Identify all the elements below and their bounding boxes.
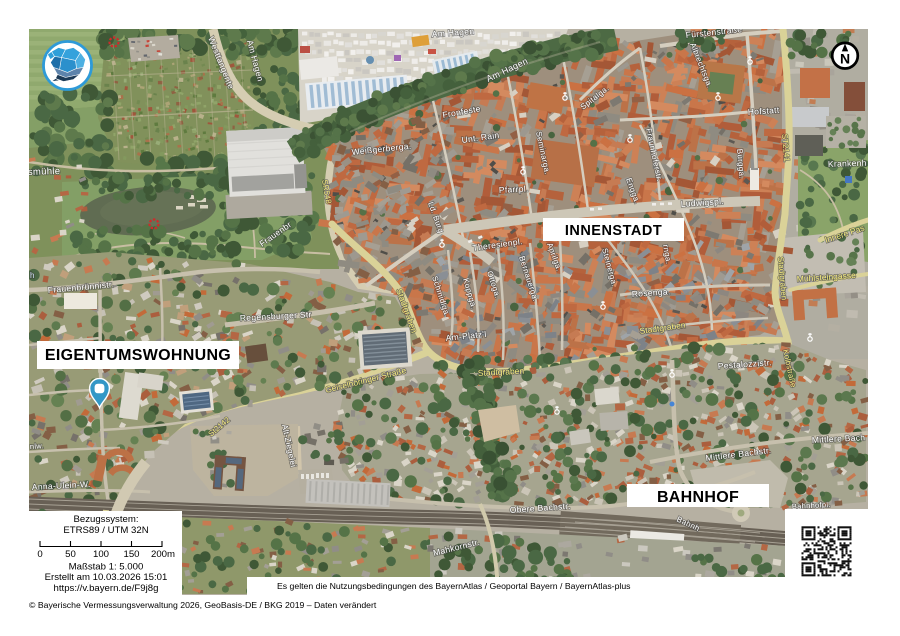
svg-text:Maßstab 1: 5.000: Maßstab 1: 5.000: [69, 562, 144, 573]
svg-text:200m: 200m: [151, 549, 175, 560]
svg-text:0: 0: [37, 549, 42, 560]
svg-text:100: 100: [93, 549, 109, 560]
svg-text:Krankenh: Krankenh: [828, 158, 867, 169]
svg-text:Bezugssystem:: Bezugssystem:: [73, 514, 138, 525]
svg-text:h: h: [30, 271, 35, 280]
svg-text:https://v.bayern.de/F9j8g: https://v.bayern.de/F9j8g: [54, 583, 159, 594]
svg-text:ETRS89 / UTM 32N: ETRS89 / UTM 32N: [63, 525, 148, 536]
svg-text:nlw.: nlw.: [30, 441, 45, 451]
svg-text:N: N: [840, 50, 850, 66]
svg-text:Erstellt am 10.03.2026 15:01: Erstellt am 10.03.2026 15:01: [45, 572, 168, 583]
svg-text:50: 50: [65, 549, 76, 560]
svg-text:smühle: smühle: [29, 166, 61, 178]
svg-text:Pfarrpl.: Pfarrpl.: [499, 183, 529, 195]
svg-text:150: 150: [123, 549, 139, 560]
